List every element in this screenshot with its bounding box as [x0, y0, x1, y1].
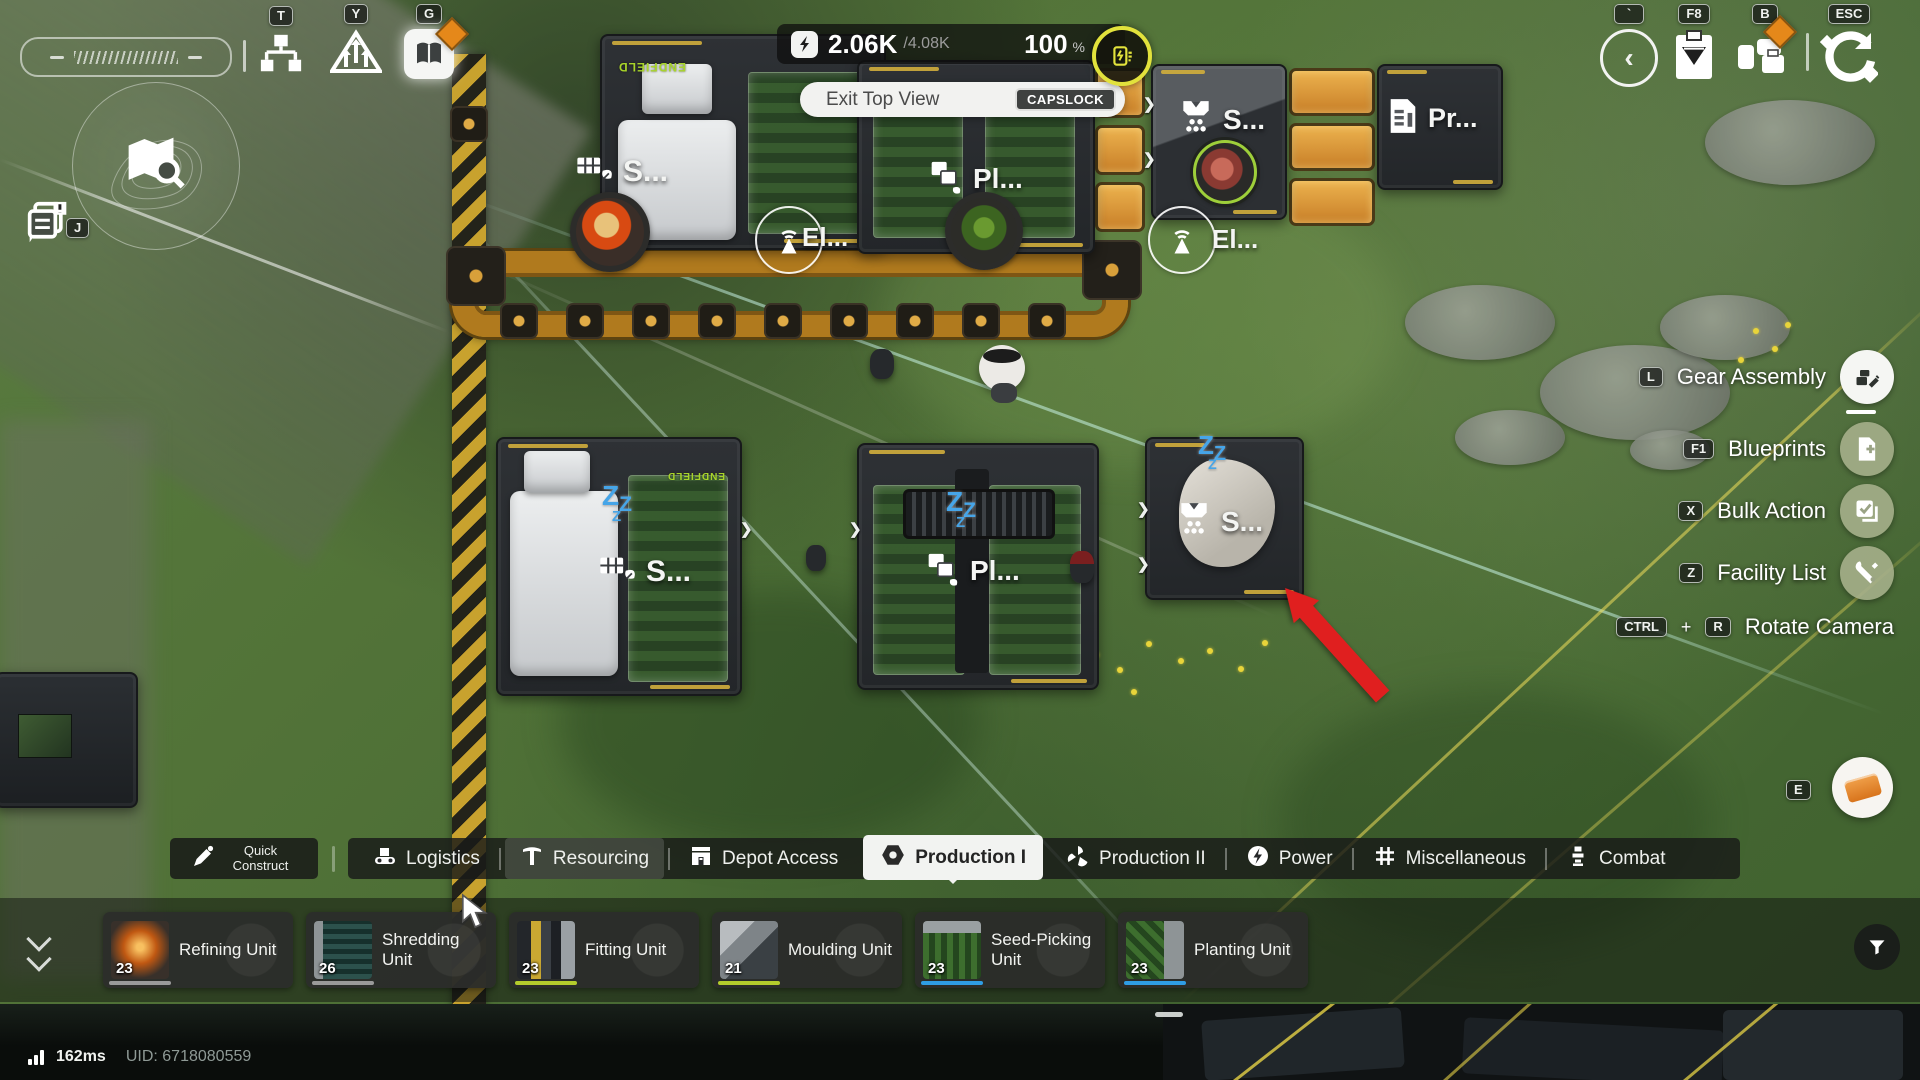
- hierarchy-icon: [258, 31, 304, 82]
- quick-construct-button[interactable]: Quick Construct: [170, 838, 318, 879]
- rocks: [1455, 410, 1565, 465]
- key-r: R: [1705, 617, 1730, 637]
- tab-label: Logistics: [406, 848, 480, 870]
- battery-icon[interactable]: [1092, 26, 1152, 86]
- power-bar: 2.06K /4.08K 100 %: [777, 24, 1125, 64]
- count-badge: 26: [319, 960, 336, 977]
- operator[interactable]: [806, 545, 826, 571]
- rocks: [1405, 285, 1555, 360]
- gear-assembly-label: Gear Assembly: [1677, 364, 1826, 390]
- logistics-icon: [373, 844, 397, 874]
- underline-gray: [109, 981, 171, 985]
- reset-view-icon: [1820, 29, 1878, 90]
- delivery-icon: [1843, 772, 1882, 803]
- collapse-strip-button[interactable]: [30, 930, 48, 968]
- game-viewport: ENDFIELD S... Pl... ❯❯ S... Pr... El...: [0, 0, 1920, 1080]
- planting-unit-thumb: 23: [1126, 921, 1184, 979]
- minimap[interactable]: [72, 82, 240, 250]
- ping-value: 162ms: [56, 1048, 106, 1066]
- shredder-label-top: S...: [1177, 96, 1265, 143]
- key-squad[interactable]: T: [269, 6, 293, 26]
- gear-assembly-icon[interactable]: [1840, 350, 1894, 404]
- key-tasks[interactable]: F8: [1678, 4, 1709, 24]
- seed-picking-unit-thumb: 23: [923, 921, 981, 979]
- card-name: Seed-Picking Unit: [991, 930, 1103, 971]
- power-bolt-icon: [791, 31, 818, 58]
- key-back[interactable]: `: [1614, 4, 1644, 24]
- card-fitting-unit[interactable]: 23 Fitting Unit: [509, 912, 699, 988]
- exit-top-view-label: Exit Top View: [826, 89, 939, 111]
- miscellaneous-icon: [1373, 844, 1397, 874]
- count-badge: 21: [725, 960, 742, 977]
- count-badge: 23: [522, 960, 539, 977]
- underline-blue: [921, 981, 983, 985]
- conveyor-end[interactable]: [446, 246, 506, 306]
- tab-label: Miscellaneous: [1406, 848, 1526, 870]
- delivery-button[interactable]: [1832, 757, 1893, 818]
- shredder-label-mid: S...: [1175, 498, 1263, 545]
- zoom-slider[interactable]: [20, 37, 232, 77]
- key-blueprints: F1: [1683, 439, 1714, 459]
- panda-operator[interactable]: [977, 345, 1027, 403]
- divider: [332, 846, 335, 872]
- tab-resourcing[interactable]: Resourcing: [505, 838, 664, 879]
- underline-yellowgreen: [718, 981, 780, 985]
- key-bulk-action: X: [1678, 501, 1703, 521]
- journal-icon[interactable]: [26, 200, 70, 251]
- electric-pylon-right[interactable]: [1148, 206, 1216, 274]
- rotate-camera-label: Rotate Camera: [1745, 614, 1894, 640]
- exit-build-panel[interactable]: ESC: [1820, 4, 1878, 90]
- shredder-icon: [1177, 96, 1215, 143]
- tab-label: Combat: [1599, 848, 1666, 870]
- count-badge: 23: [1131, 960, 1148, 977]
- bulk-action-label: Bulk Action: [1717, 498, 1826, 524]
- planter-icon: [922, 548, 962, 593]
- quick-construct-icon: [192, 844, 216, 873]
- map-magnifier-icon: [123, 135, 187, 198]
- item-meat: [1193, 140, 1257, 204]
- shredder-icon: [1175, 498, 1213, 545]
- tab-depot-access[interactable]: Depot Access: [674, 838, 853, 879]
- tab-label: Resourcing: [553, 848, 649, 870]
- card-name: Refining Unit: [179, 940, 291, 960]
- uid-value: UID: 6718080559: [126, 1048, 251, 1066]
- key-esc[interactable]: ESC: [1828, 4, 1871, 24]
- power-icon: [1246, 844, 1270, 874]
- mouse-cursor: [460, 893, 490, 936]
- active-indicator: [1846, 410, 1876, 414]
- underline-yellowgreen: [515, 981, 577, 985]
- count-badge: 23: [928, 960, 945, 977]
- tab-power[interactable]: Power: [1231, 838, 1348, 879]
- bottom-right-factory: [1163, 1004, 1920, 1080]
- tab-label: Production I: [915, 847, 1026, 869]
- menu-bulk-action[interactable]: X Bulk Action: [1678, 484, 1894, 538]
- card-seed-picking-unit[interactable]: 23 Seed-Picking Unit: [915, 912, 1105, 988]
- bottom-dark-strip: [0, 1004, 1163, 1080]
- key-ctrl: CTRL: [1616, 617, 1667, 637]
- status-bar: 162ms UID: 6718080559: [28, 1048, 251, 1066]
- depot-icon: [689, 844, 713, 874]
- endfield-tag: ENDFIELD: [618, 60, 686, 74]
- menu-gear-assembly[interactable]: L Gear Assembly: [1639, 350, 1894, 404]
- el-label-right: El...: [1212, 224, 1258, 255]
- power-unit: %: [1073, 39, 1085, 55]
- item-orange-seed: [570, 192, 650, 272]
- tab-label: Production II: [1099, 848, 1206, 870]
- tab-combat[interactable]: Combat: [1551, 838, 1681, 879]
- seed-unit-label-mid: S...: [596, 548, 691, 595]
- squad-panel[interactable]: T: [258, 6, 304, 82]
- printer-label: Pr...: [1386, 96, 1478, 141]
- card-refining-unit[interactable]: 23 Refining Unit: [103, 912, 293, 988]
- key-capslock: CAPSLOCK: [1015, 88, 1116, 111]
- power-max: /4.08K: [903, 35, 949, 53]
- card-name: Moulding Unit: [788, 940, 900, 960]
- combat-icon: [1566, 844, 1590, 874]
- menu-blueprints[interactable]: F1 Blueprints: [1683, 422, 1894, 476]
- filter-button[interactable]: [1854, 924, 1900, 970]
- facility-list-icon[interactable]: [1840, 546, 1894, 600]
- key-terrain[interactable]: Y: [344, 4, 369, 24]
- quick-construct-label: Quick Construct: [225, 844, 297, 874]
- key-facility-list: Z: [1679, 563, 1703, 583]
- production2-icon: [1066, 844, 1090, 874]
- scroll-indicator[interactable]: [1155, 1012, 1183, 1017]
- operator[interactable]: [1070, 551, 1094, 583]
- fitting-unit-thumb: 23: [517, 921, 575, 979]
- divider: [243, 40, 246, 72]
- moulding-unit-thumb: 21: [720, 921, 778, 979]
- card-planting-unit[interactable]: 23 Planting Unit: [1118, 912, 1308, 988]
- key-gear-assembly: L: [1639, 367, 1663, 387]
- card-name: Fitting Unit: [585, 940, 697, 960]
- exit-top-view-button[interactable]: Exit Top View CAPSLOCK: [800, 82, 1125, 117]
- seed-unit-label-top: S...: [573, 148, 668, 195]
- building-bottom-left: [0, 672, 138, 808]
- tab-miscellaneous[interactable]: Miscellaneous: [1358, 838, 1541, 879]
- endfield-tag: ENDFIELD: [667, 470, 725, 481]
- power-percent: 100: [1024, 29, 1067, 60]
- key-journal[interactable]: J: [66, 218, 89, 238]
- count-badge: 23: [116, 960, 133, 977]
- planting-label-mid: Pl...: [922, 548, 1020, 593]
- menu-facility-list[interactable]: Z Facility List: [1679, 546, 1894, 600]
- funnel-icon: [1867, 937, 1887, 957]
- resourcing-icon: [520, 844, 544, 874]
- card-moulding-unit[interactable]: 21 Moulding Unit: [712, 912, 902, 988]
- tab-production-1[interactable]: Production I: [863, 835, 1043, 880]
- radar-icon: [1164, 222, 1200, 258]
- terrain-panel[interactable]: Y: [330, 4, 382, 80]
- underline-gray: [312, 981, 374, 985]
- card-name: Planting Unit: [1194, 940, 1306, 960]
- divider: [1806, 33, 1809, 71]
- blueprints-label: Blueprints: [1728, 436, 1826, 462]
- planter-icon: [925, 156, 965, 201]
- item-plant: [945, 192, 1023, 270]
- bulk-action-icon[interactable]: [1840, 484, 1894, 538]
- menu-rotate-camera: CTRL + R Rotate Camera: [1616, 614, 1894, 640]
- blueprints-icon[interactable]: [1840, 422, 1894, 476]
- power-current: 2.06K: [828, 29, 897, 60]
- production1-icon: [880, 842, 906, 874]
- back-icon: ‹: [1600, 29, 1658, 87]
- underline-blue: [1124, 981, 1186, 985]
- refining-unit-thumb: 23: [111, 921, 169, 979]
- el-label-left: El...: [802, 222, 848, 253]
- key-handbook[interactable]: G: [416, 4, 442, 24]
- shredding-unit-thumb: 26: [314, 921, 372, 979]
- tab-production-2[interactable]: Production II: [1051, 838, 1221, 879]
- operator[interactable]: [870, 349, 894, 379]
- signal-icon: [28, 1050, 44, 1065]
- clipboard-icon: [1672, 29, 1716, 86]
- seed-tray-icon: [596, 548, 638, 595]
- document-icon: [1386, 96, 1420, 141]
- red-annotation-arrow: [1285, 588, 1392, 707]
- conveyor-cells: [1289, 68, 1375, 226]
- plus-sign: +: [1681, 617, 1692, 638]
- terrain-icon: [330, 29, 382, 80]
- tab-label: Power: [1279, 848, 1333, 870]
- rocks: [1705, 100, 1875, 185]
- category-tabbar: Logistics Resourcing Depot Access Produc…: [348, 838, 1740, 879]
- back-panel[interactable]: ` ‹: [1600, 4, 1658, 87]
- key-mail[interactable]: E: [1786, 780, 1811, 800]
- facility-list-label: Facility List: [1717, 560, 1826, 586]
- tasks-panel[interactable]: F8: [1672, 4, 1716, 86]
- seed-tray-icon: [573, 148, 615, 195]
- tab-logistics[interactable]: Logistics: [358, 838, 495, 879]
- tab-label: Depot Access: [722, 848, 838, 870]
